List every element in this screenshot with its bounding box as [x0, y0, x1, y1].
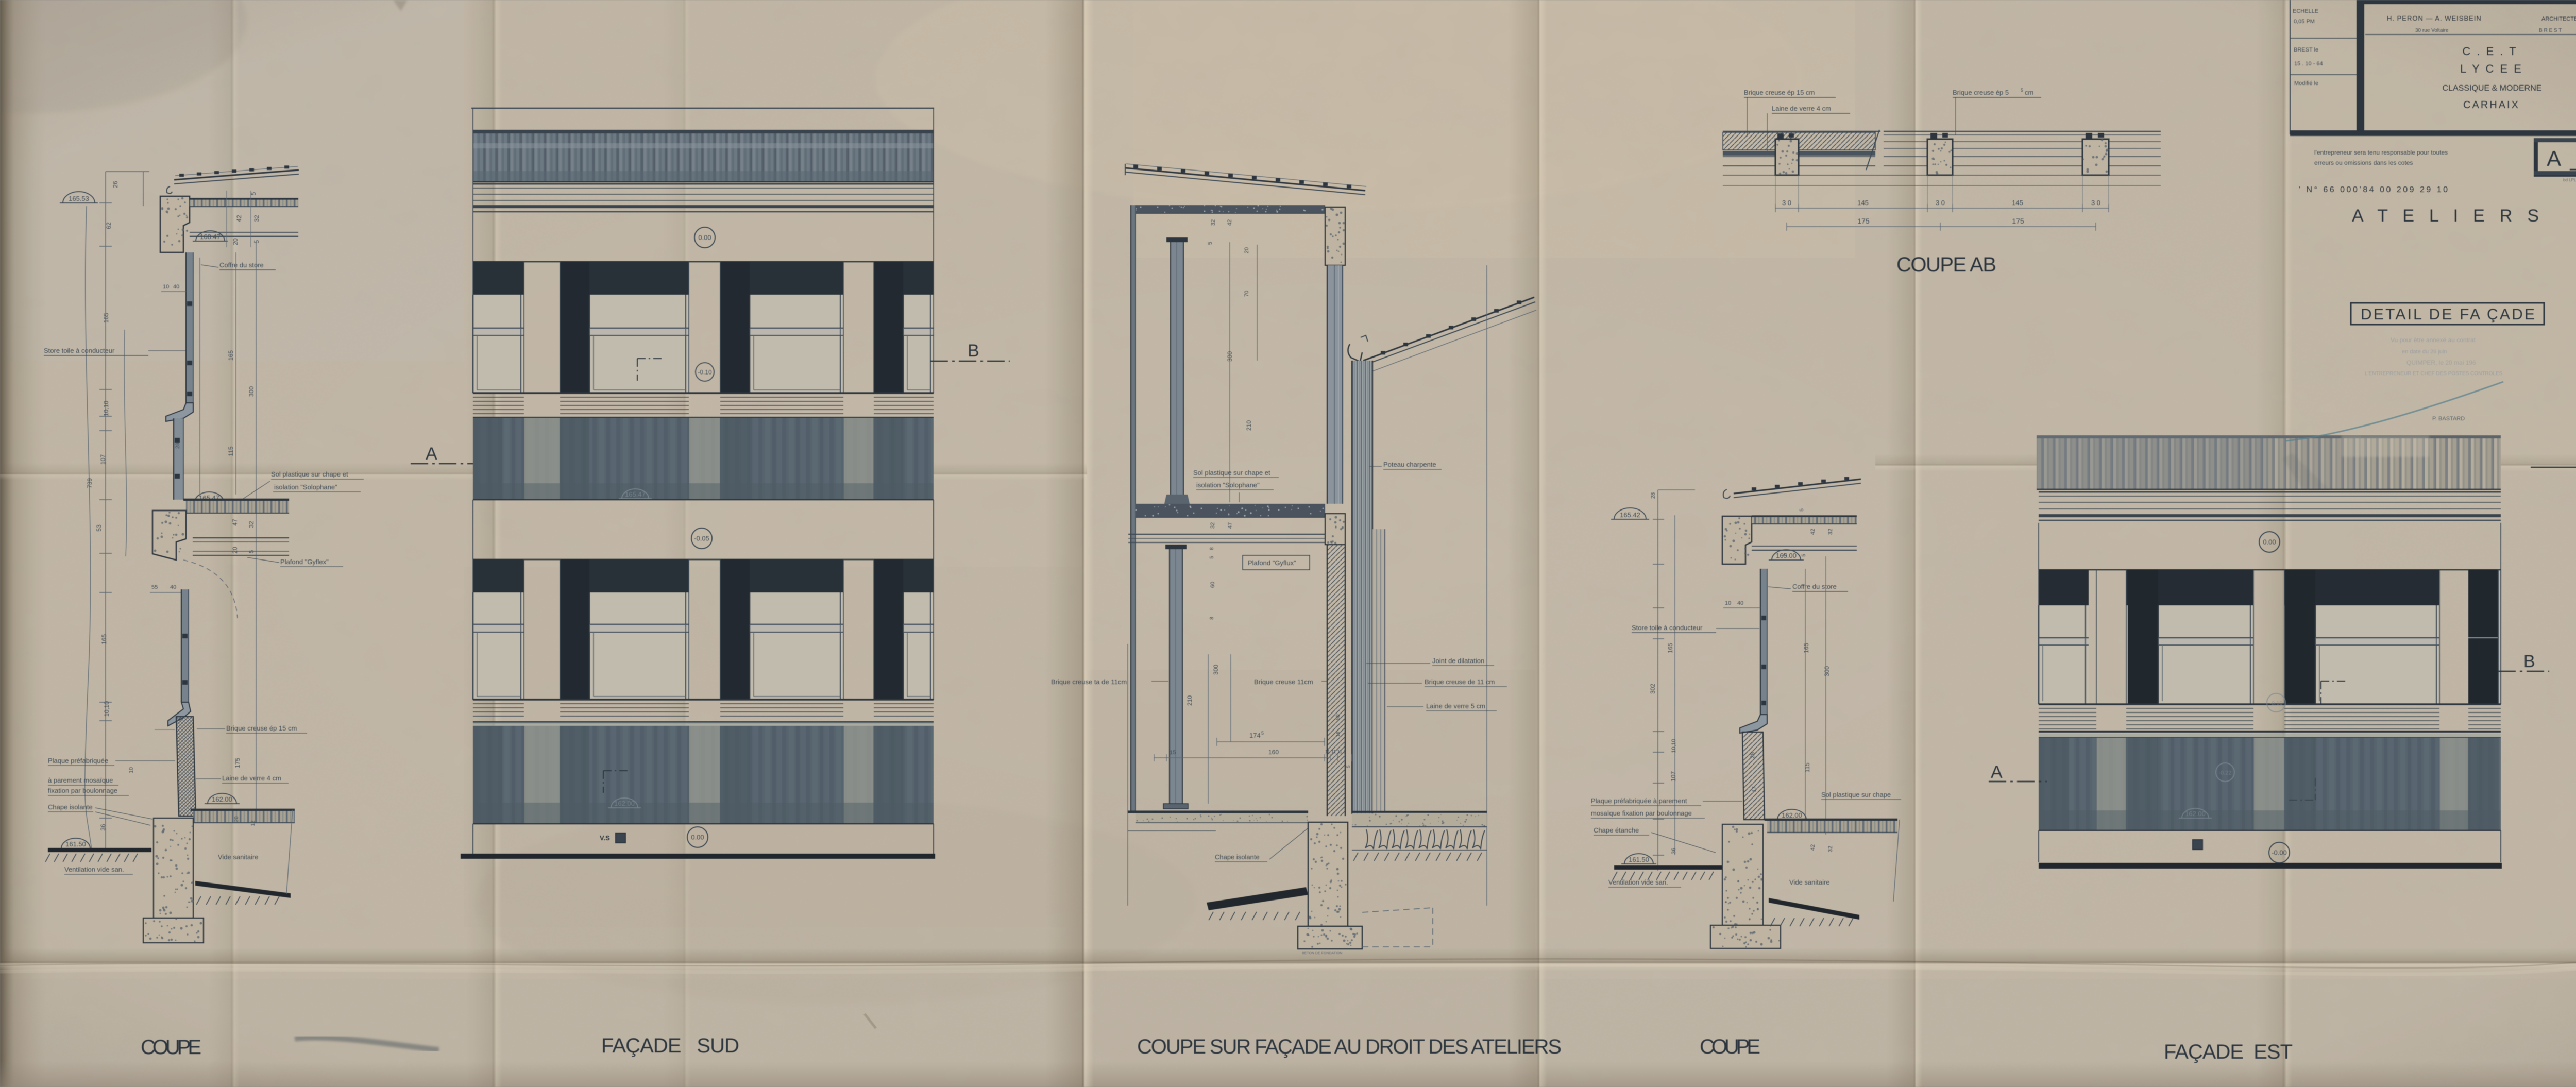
svg-text:ECHELLE: ECHELLE	[2293, 8, 2318, 14]
svg-text:A: A	[1991, 762, 2003, 782]
svg-text:COUPE: COUPE	[141, 1036, 201, 1059]
svg-text:5: 5	[253, 240, 260, 243]
svg-text:32: 32	[1827, 846, 1834, 852]
svg-text:739: 739	[86, 478, 93, 488]
svg-text:20: 20	[232, 238, 239, 245]
svg-text:en date du 26 juin: en date du 26 juin	[2402, 349, 2447, 355]
svg-text:Sol plastique sur chape: Sol plastique sur chape	[1821, 791, 1891, 799]
svg-text:162.00: 162.00	[614, 800, 635, 807]
svg-text:165: 165	[100, 634, 108, 644]
svg-text:Joint de dilatation: Joint de dilatation	[1432, 657, 1484, 665]
svg-text:300: 300	[248, 386, 255, 397]
svg-text:32: 32	[253, 215, 260, 222]
svg-text:Brique creuse ép 15 cm: Brique creuse ép 15 cm	[226, 724, 297, 732]
svg-text:302: 302	[1649, 684, 1656, 694]
svg-text:Laine de verre 4 cm: Laine de verre 4 cm	[222, 774, 281, 782]
svg-text:115: 115	[227, 446, 234, 456]
svg-text:17: 17	[1752, 786, 1757, 792]
svg-text:26: 26	[112, 181, 119, 188]
svg-text:5: 5	[1209, 556, 1215, 559]
svg-text:174: 174	[1249, 732, 1261, 739]
svg-text:3 0: 3 0	[1936, 199, 1945, 207]
svg-text:-0.10: -0.10	[698, 369, 712, 376]
svg-text:165.53: 165.53	[69, 195, 89, 202]
svg-text:107: 107	[1670, 771, 1677, 782]
svg-text:Coffre du store: Coffre du store	[219, 261, 264, 269]
svg-text:Ventilation vide san.: Ventilation vide san.	[64, 865, 124, 873]
svg-text:Modifié le: Modifié le	[2294, 80, 2318, 87]
svg-text:40: 40	[173, 284, 179, 290]
svg-text:32: 32	[248, 521, 255, 528]
svg-text:3 0: 3 0	[1782, 199, 1791, 207]
svg-text:Chape isolante: Chape isolante	[48, 803, 93, 811]
svg-text:B: B	[968, 341, 979, 361]
svg-text:145: 145	[1857, 199, 1869, 207]
svg-text:165.00: 165.00	[1776, 552, 1797, 559]
svg-text:Store toile à conducteur: Store toile à conducteur	[1632, 624, 1703, 632]
svg-text:53: 53	[95, 524, 103, 532]
svg-text:Brique creuse ta de 11cm: Brique creuse ta de 11cm	[1051, 678, 1127, 686]
svg-text:32: 32	[1827, 529, 1834, 535]
svg-text:FAÇADE EST: FAÇADE EST	[2164, 1041, 2293, 1063]
svg-text:H. PERON — A. WEISBEIN: H. PERON — A. WEISBEIN	[2387, 14, 2482, 22]
svg-text:15 . 10 - 64: 15 . 10 - 64	[2294, 61, 2323, 67]
svg-text:70: 70	[1244, 291, 1250, 297]
svg-text:32: 32	[1210, 219, 1216, 226]
svg-text:42: 42	[1810, 529, 1816, 535]
svg-text:FAÇADE SUD: FAÇADE SUD	[601, 1034, 739, 1057]
svg-text:0,05 PM: 0,05 PM	[2294, 19, 2315, 25]
svg-text:5: 5	[1261, 731, 1264, 736]
svg-text:107: 107	[99, 454, 107, 465]
svg-text:0.00: 0.00	[698, 234, 711, 242]
svg-text:5: 5	[1346, 765, 1351, 768]
svg-text:Store toile à conducteur: Store toile à conducteur	[44, 347, 115, 354]
svg-text:165.47: 165.47	[625, 490, 646, 498]
svg-text:5: 5	[1207, 242, 1213, 245]
svg-text:0.00: 0.00	[2263, 538, 2276, 546]
svg-text:40: 40	[170, 584, 176, 590]
svg-text:0.00: 0.00	[691, 834, 704, 841]
svg-text:A _ 8: A _ 8	[2547, 146, 2576, 171]
svg-text:300: 300	[1226, 351, 1233, 362]
svg-text:145: 145	[2012, 199, 2023, 207]
svg-text:115: 115	[1804, 762, 1811, 772]
svg-text:5: 5	[248, 550, 255, 553]
svg-text:3 0: 3 0	[2091, 199, 2100, 207]
svg-text:Sol plastique sur chape et: Sol plastique sur chape et	[271, 470, 348, 478]
svg-text:8: 8	[1209, 617, 1215, 620]
svg-text:Vu pour être annexé au contrat: Vu pour être annexé au contrat	[2391, 336, 2476, 344]
svg-text:erreurs ou omissions dans les: erreurs ou omissions dans les cotes	[2314, 159, 2413, 166]
svg-text:50: 50	[1335, 714, 1341, 720]
svg-text:COUPE SUR FAÇADE AU DROIT DE: COUPE SUR FAÇADE AU DROIT DES ATELIERS	[1137, 1035, 1562, 1058]
svg-text:28: 28	[1750, 752, 1756, 758]
svg-text:160: 160	[1268, 749, 1279, 756]
svg-text:42: 42	[1227, 219, 1233, 226]
svg-text:L Y C E E: L Y C E E	[2460, 62, 2523, 75]
svg-text:60: 60	[1210, 582, 1216, 588]
svg-text:5: 5	[1801, 554, 1807, 557]
svg-text:Chape isolante: Chape isolante	[1215, 853, 1260, 861]
svg-text:CARHAIX: CARHAIX	[2463, 99, 2520, 111]
svg-text:10,10: 10,10	[103, 401, 110, 416]
svg-text:' N° 66 000’84 00 209 29 10: ' N° 66 000’84 00 209 29 10	[2299, 185, 2450, 194]
svg-text:bd LPL - Brest: bd LPL - Brest	[2563, 178, 2576, 182]
svg-text:Brique creuse ép 15 cm: Brique creuse ép 15 cm	[1744, 89, 1815, 96]
svg-text:5: 5	[1799, 508, 1805, 512]
svg-text:47: 47	[1227, 522, 1233, 529]
svg-text:5: 5	[2021, 88, 2023, 93]
svg-text:-0.05: -0.05	[694, 535, 709, 542]
svg-text:CLASSIQUE & MODERNE: CLASSIQUE & MODERNE	[2443, 84, 2542, 93]
svg-text:165: 165	[227, 350, 234, 361]
svg-text:-0.22: -0.22	[2218, 770, 2231, 776]
svg-text:42: 42	[1810, 844, 1816, 851]
svg-text:40: 40	[1737, 600, 1743, 606]
svg-text:Laine de verre 4 cm: Laine de verre 4 cm	[1772, 105, 1831, 112]
svg-text:fixation par boulonnage: fixation par boulonnage	[48, 787, 117, 794]
svg-text:32: 32	[1210, 522, 1216, 529]
svg-text:12: 12	[250, 820, 256, 826]
svg-text:Vide sanitaire: Vide sanitaire	[218, 853, 259, 861]
svg-text:161.50: 161.50	[65, 840, 86, 848]
svg-text:BREST le: BREST le	[2294, 47, 2318, 53]
svg-text:L'ENTREPRENEUR ET CHEF DES POS: L'ENTREPRENEUR ET CHEF DES POSTES CONTRO…	[2365, 371, 2503, 377]
svg-text:20: 20	[234, 816, 240, 822]
svg-text:cm: cm	[2025, 89, 2033, 96]
svg-text:l'entrepreneur sera tenu respo: l'entrepreneur sera tenu responsable pou…	[2314, 149, 2448, 156]
svg-text:20: 20	[231, 547, 239, 554]
svg-text:162.00: 162.00	[2185, 810, 2206, 818]
svg-text:Sol plastique sur chape et: Sol plastique sur chape et	[1193, 469, 1270, 477]
svg-text:-0.10: -0.10	[2269, 701, 2282, 707]
svg-text:62: 62	[105, 222, 112, 229]
svg-text:210: 210	[1245, 420, 1252, 431]
svg-text:165: 165	[1803, 643, 1810, 653]
svg-text:10: 10	[128, 767, 134, 773]
svg-text:47: 47	[231, 519, 239, 526]
svg-text:A: A	[426, 444, 437, 464]
svg-text:20: 20	[1244, 247, 1250, 253]
svg-text:175: 175	[2012, 217, 2024, 225]
svg-text:C . E . T: C . E . T	[2462, 45, 2517, 58]
svg-text:300: 300	[1212, 665, 1219, 675]
svg-text:isolation "Solophane": isolation "Solophane"	[1196, 481, 1260, 489]
svg-text:16: 16	[1335, 732, 1341, 737]
svg-text:300: 300	[1823, 666, 1831, 676]
svg-text:8: 8	[1209, 547, 1215, 550]
svg-text:161.50: 161.50	[1629, 856, 1649, 863]
svg-text:isolation "Solophane": isolation "Solophane"	[274, 483, 337, 491]
svg-text:10: 10	[163, 284, 169, 290]
svg-text:165: 165	[103, 313, 110, 323]
svg-text:Chape étanche: Chape étanche	[1594, 826, 1639, 834]
svg-text:28: 28	[1650, 492, 1656, 499]
svg-text:165.42: 165.42	[1620, 511, 1640, 519]
svg-text:15: 15	[1170, 750, 1176, 756]
svg-text:COUPE: COUPE	[1700, 1035, 1760, 1058]
svg-text:42: 42	[235, 215, 243, 222]
svg-text:Plafond "Gyflex": Plafond "Gyflex"	[280, 558, 329, 566]
svg-text:10: 10	[1725, 600, 1731, 606]
svg-text:B R E S T: B R E S T	[2539, 28, 2562, 33]
svg-text:Ventilation vide san.: Ventilation vide san.	[1608, 878, 1668, 886]
svg-text:Brique creuse ép 5: Brique creuse ép 5	[1953, 89, 2009, 96]
svg-text:Laine de verre 5 cm: Laine de verre 5 cm	[1426, 702, 1485, 710]
svg-text:28: 28	[175, 443, 181, 449]
svg-text:Plafond "Gyflux": Plafond "Gyflux"	[1248, 559, 1296, 567]
svg-text:à parement mosaïque: à parement mosaïque	[48, 776, 113, 784]
svg-text:ARCHITECTES D.P.L.G.: ARCHITECTES D.P.L.G.	[2541, 16, 2576, 22]
svg-text:210: 210	[1186, 695, 1193, 706]
svg-text:Brique creuse 11cm: Brique creuse 11cm	[1254, 678, 1313, 686]
svg-text:Plaque préfabriquée: Plaque préfabriquée	[48, 757, 108, 765]
svg-text:175: 175	[234, 758, 241, 768]
svg-text:30 rue Voltaire: 30 rue Voltaire	[2415, 28, 2449, 33]
svg-text:162.00: 162.00	[1782, 811, 1802, 819]
svg-text:mosaïque fixation par boulon: mosaïque fixation par boulonnage	[1591, 809, 1692, 817]
svg-text:A T E L I E R S: A T E L I E R S	[2352, 206, 2539, 226]
svg-text:10,10: 10,10	[1671, 739, 1677, 753]
svg-text:Poteau charpente: Poteau charpente	[1383, 461, 1436, 468]
svg-text:162.00: 162.00	[212, 795, 232, 803]
svg-text:V.S: V.S	[600, 834, 610, 842]
svg-text:Coffre du store: Coffre du store	[1792, 583, 1837, 590]
svg-text:Vide sanitaire: Vide sanitaire	[1789, 878, 1830, 886]
svg-text:36: 36	[1671, 848, 1677, 854]
svg-text:DETAIL DE FA ÇADE: DETAIL DE FA ÇADE	[2361, 306, 2535, 323]
svg-text:36: 36	[99, 824, 107, 831]
svg-text:QUIMPER, le 20 mai 196: QUIMPER, le 20 mai 196	[2406, 359, 2476, 366]
svg-text:-0.00: -0.00	[2272, 849, 2287, 857]
svg-text:11 11 11 1: 11 11 11 1	[1325, 749, 1346, 754]
svg-text:P. BASTARD: P. BASTARD	[2432, 416, 2465, 422]
svg-text:B: B	[2523, 652, 2535, 671]
svg-text:55: 55	[151, 584, 158, 590]
svg-text:Brique creuse de 11 cm: Brique creuse de 11 cm	[1425, 678, 1495, 686]
svg-text:10,10: 10,10	[103, 701, 110, 717]
svg-text:175: 175	[1857, 217, 1870, 225]
svg-text:COUPE AB: COUPE AB	[1896, 253, 1996, 276]
svg-text:165: 165	[1667, 643, 1674, 653]
svg-text:Plaque préfabriquée à paremen: Plaque préfabriquée à parement	[1591, 797, 1687, 805]
svg-text:BETON DE FONDATION: BETON DE FONDATION	[1302, 952, 1342, 955]
